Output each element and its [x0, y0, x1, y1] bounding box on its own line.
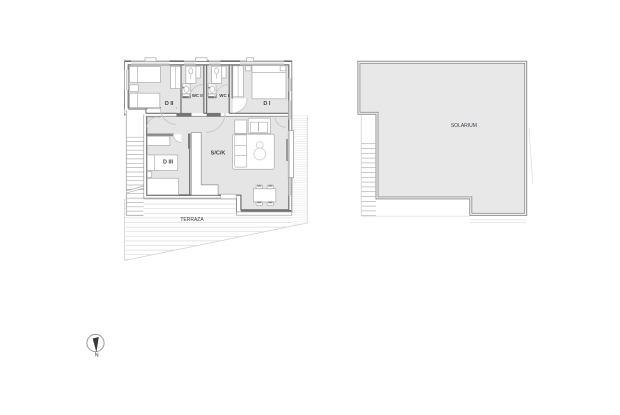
svg-text:N: N — [95, 352, 99, 358]
svg-text:D III: D III — [163, 159, 174, 165]
svg-text:WC I: WC I — [219, 93, 229, 98]
svg-text:S/C/K: S/C/K — [211, 151, 226, 157]
svg-text:WC II: WC II — [192, 93, 203, 98]
svg-text:TERRAZA: TERRAZA — [180, 217, 204, 223]
svg-text:SOLARIUM: SOLARIUM — [451, 123, 477, 129]
svg-text:D II: D II — [165, 101, 174, 107]
svg-text:D I: D I — [263, 101, 271, 107]
